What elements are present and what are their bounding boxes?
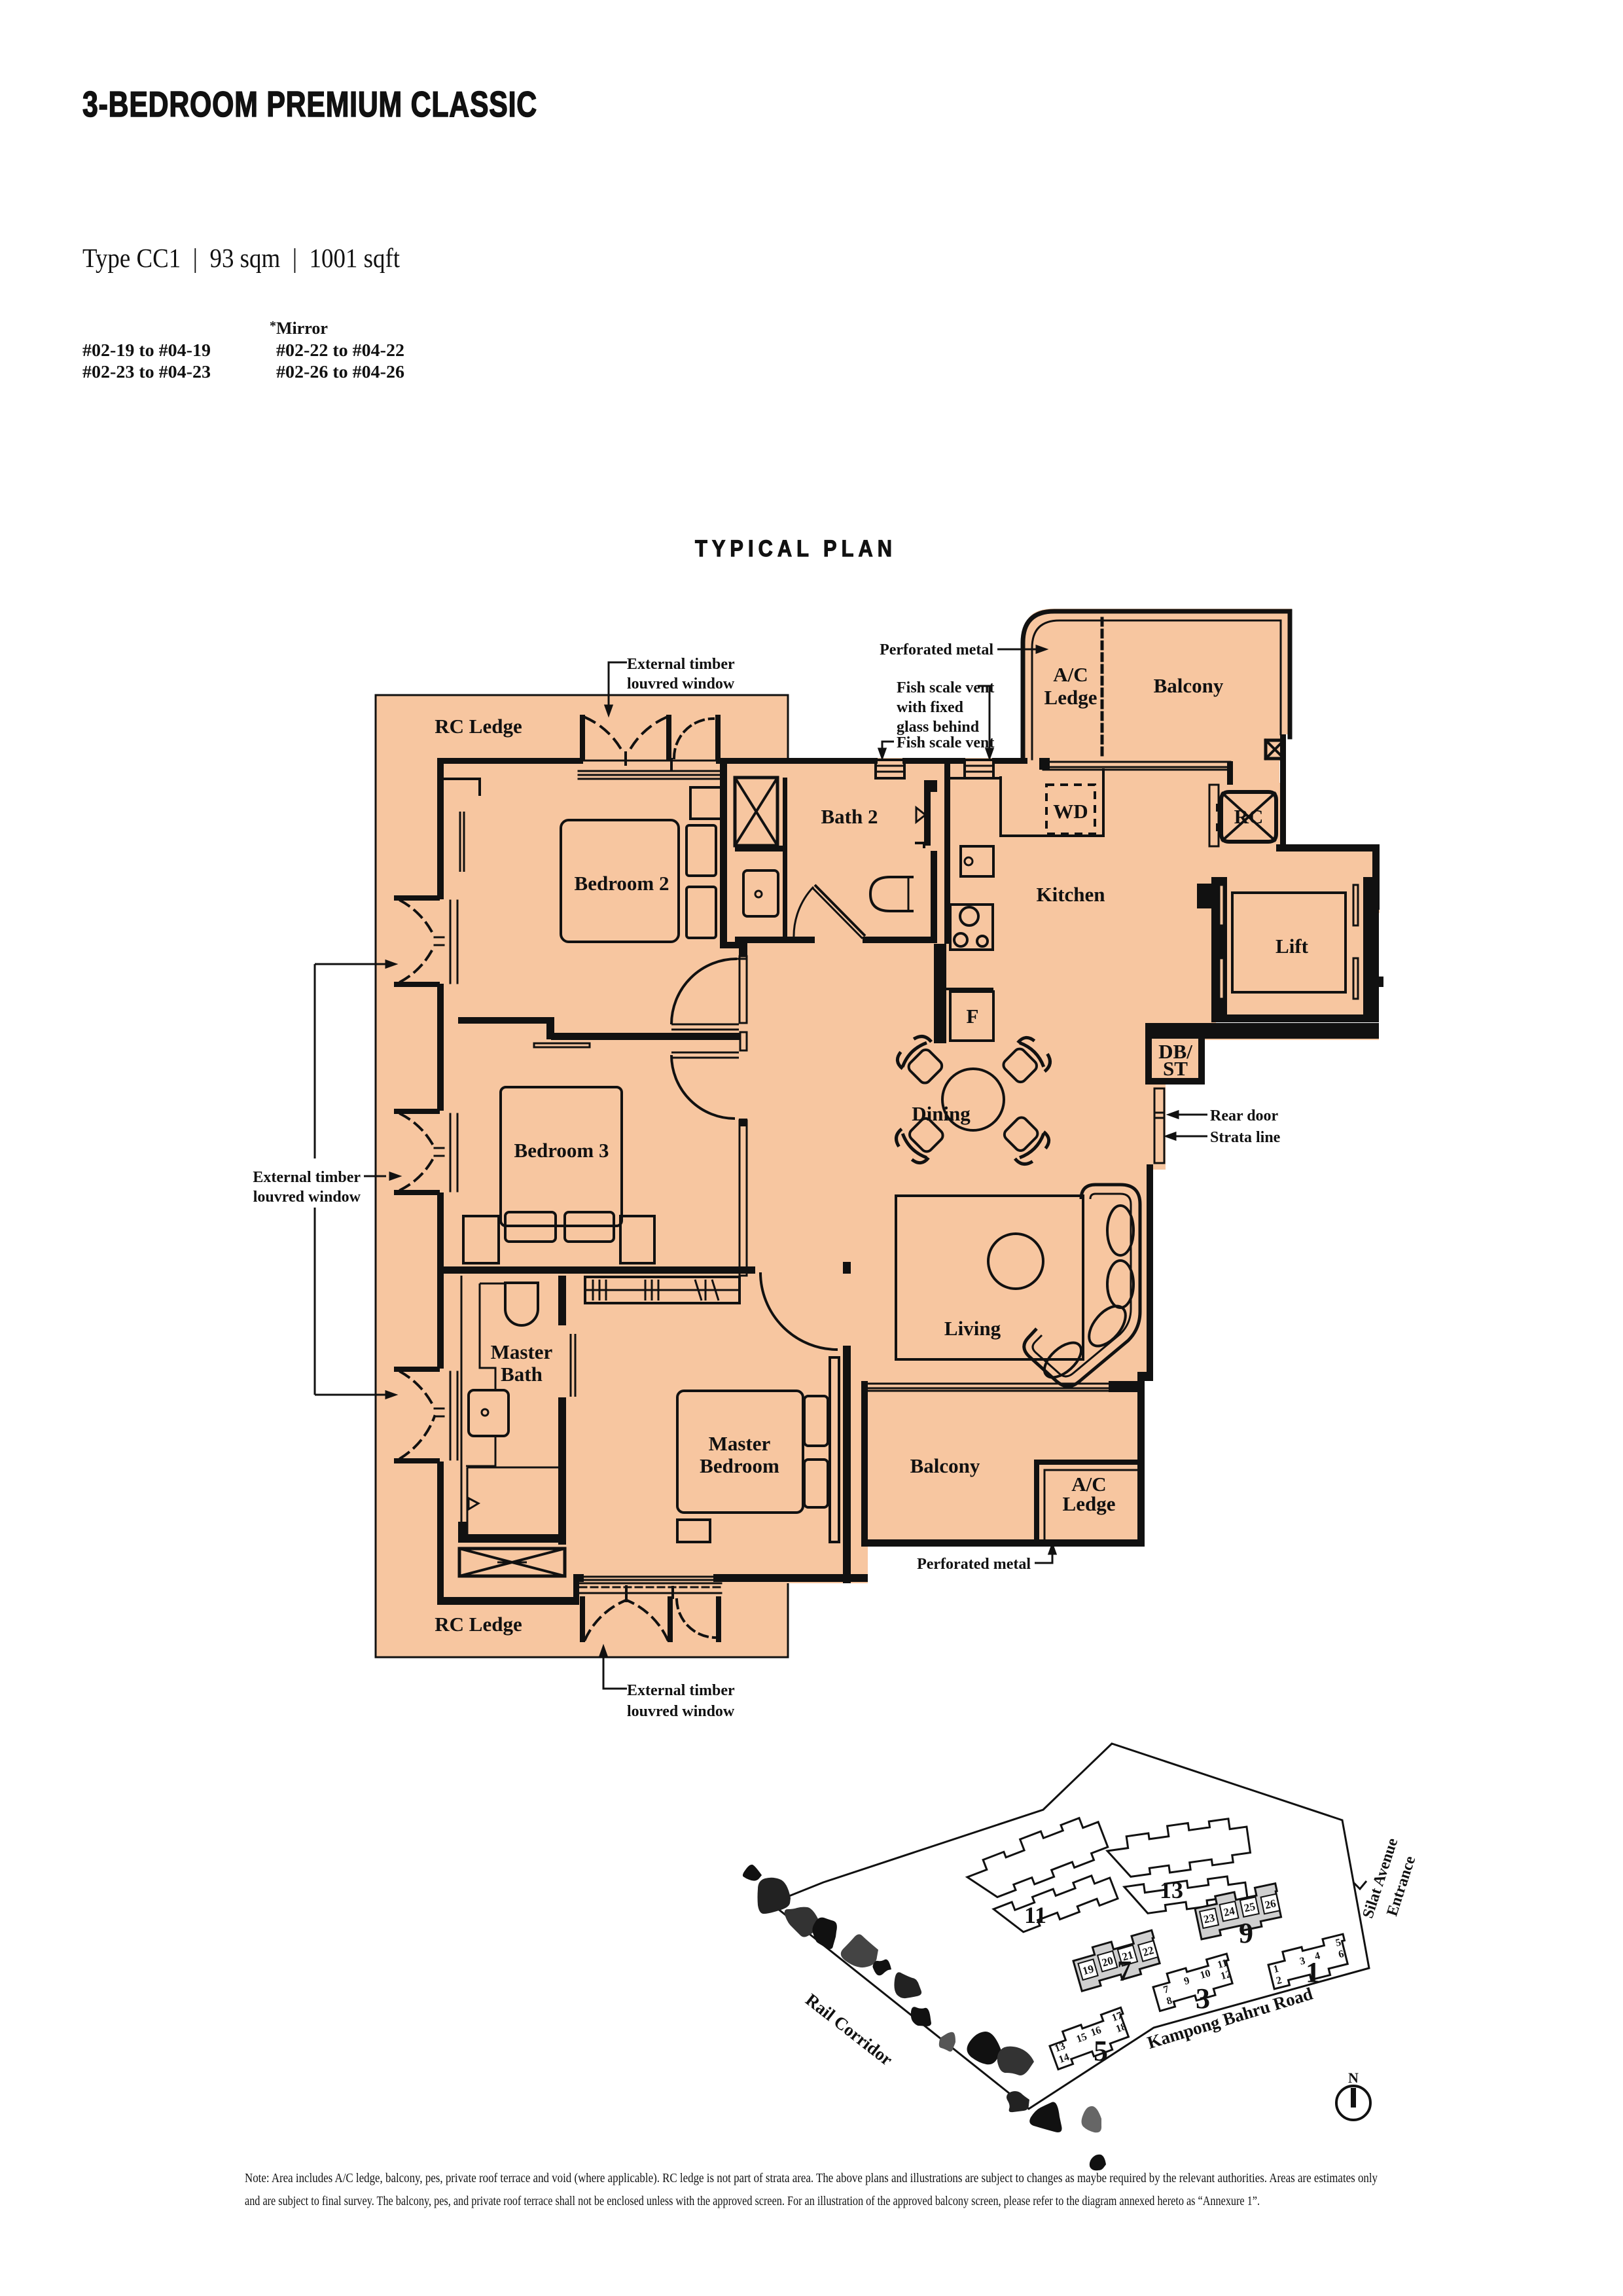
svg-text:WD: WD xyxy=(1053,800,1088,823)
svg-text:Bedroom 3: Bedroom 3 xyxy=(514,1139,609,1162)
svg-text:3: 3 xyxy=(1196,1982,1210,2015)
svg-text:#02-23 to #04-23: #02-23 to #04-23 xyxy=(82,362,211,382)
svg-text:louvred window: louvred window xyxy=(627,1703,735,1720)
svg-text:Dining: Dining xyxy=(912,1102,971,1125)
svg-text:13: 13 xyxy=(1160,1877,1183,1903)
svg-text:RC: RC xyxy=(1234,805,1264,828)
svg-text:Bedroom: Bedroom xyxy=(700,1454,779,1477)
svg-text:3-BEDROOM PREMIUM CLASSIC: 3-BEDROOM PREMIUM CLASSIC xyxy=(82,84,537,124)
svg-text:#02-19 to #04-19: #02-19 to #04-19 xyxy=(82,340,211,360)
svg-text:Master: Master xyxy=(709,1432,771,1455)
svg-text:ST: ST xyxy=(1163,1057,1188,1080)
svg-text:RC Ledge: RC Ledge xyxy=(435,1613,522,1636)
svg-text:and are subject to final surve: and are subject to final survey. The bal… xyxy=(245,2194,1260,2208)
svg-text:Type CC1 | 93 sqm | 1001 s: Type CC1 | 93 sqm | 1001 sqft xyxy=(82,243,401,273)
svg-text:#02-26 to #04-26: #02-26 to #04-26 xyxy=(276,362,404,382)
svg-text:RC Ledge: RC Ledge xyxy=(435,715,522,738)
svg-text:Perforated metal: Perforated metal xyxy=(917,1556,1031,1573)
svg-text:11: 11 xyxy=(1024,1902,1046,1928)
svg-text:Strata line: Strata line xyxy=(1210,1129,1281,1146)
svg-text:5: 5 xyxy=(1094,2035,1108,2067)
svg-text:Balcony: Balcony xyxy=(910,1454,980,1477)
svg-text:Bath 2: Bath 2 xyxy=(821,805,878,828)
svg-text:Note: Area includes A/C ledge,: Note: Area includes A/C ledge, balcony, … xyxy=(245,2171,1378,2185)
svg-text:Perforated metal: Perforated metal xyxy=(880,641,993,658)
svg-text:Living: Living xyxy=(944,1317,1001,1340)
svg-text:Fish scale vent: Fish scale vent xyxy=(897,734,994,751)
svg-text:#02-22 to #04-22: #02-22 to #04-22 xyxy=(276,340,404,360)
svg-text:louvred window: louvred window xyxy=(627,675,735,692)
svg-text:9: 9 xyxy=(1239,1917,1253,1949)
svg-text:Lift: Lift xyxy=(1275,935,1309,958)
svg-text:External timber: External timber xyxy=(627,1682,735,1699)
svg-text:Kitchen: Kitchen xyxy=(1036,883,1105,906)
svg-text:TYPICAL PLAN: TYPICAL PLAN xyxy=(695,536,897,562)
svg-text:glass behind: glass behind xyxy=(897,719,980,736)
svg-text:*Mirror: *Mirror xyxy=(270,319,328,338)
svg-text:7: 7 xyxy=(1117,1955,1132,1987)
svg-text:louvred window: louvred window xyxy=(253,1189,361,1206)
svg-text:Bedroom 2: Bedroom 2 xyxy=(575,872,669,895)
svg-text:N: N xyxy=(1348,2070,1359,2086)
svg-text:Balcony: Balcony xyxy=(1154,674,1224,697)
svg-text:External timber: External timber xyxy=(627,656,735,673)
svg-text:A/C: A/C xyxy=(1053,663,1088,686)
svg-text:Fish scale vent: Fish scale vent xyxy=(897,679,994,696)
svg-text:with fixed: with fixed xyxy=(897,699,964,716)
svg-text:External timber: External timber xyxy=(253,1169,361,1186)
svg-text:Bath: Bath xyxy=(501,1363,543,1386)
svg-text:Ledge: Ledge xyxy=(1063,1492,1116,1515)
svg-text:Master: Master xyxy=(491,1340,553,1363)
svg-text:F: F xyxy=(967,1005,979,1028)
svg-text:Ledge: Ledge xyxy=(1044,686,1097,709)
svg-text:Rear door: Rear door xyxy=(1210,1107,1279,1124)
